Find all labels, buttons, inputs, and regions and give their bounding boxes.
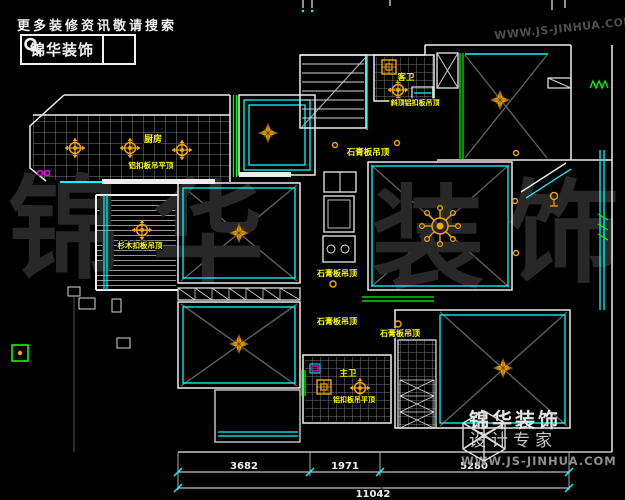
cube-logo-icon <box>461 410 507 462</box>
ornate-room <box>234 95 316 177</box>
hall-ceiling-label: 石膏板吊顶 <box>346 147 390 158</box>
ceiling-rosette-symbol <box>259 124 277 142</box>
watermark-text-layer: 锦 华 装 饰 <box>8 165 620 305</box>
watermark-char: 锦 <box>8 165 120 295</box>
watermark-char: 饰 <box>508 169 620 299</box>
bath-top-label: 客卫 <box>396 72 415 83</box>
room-bottomleft <box>178 288 300 442</box>
bath-bottom-label: 主卫 <box>339 368 357 379</box>
vegetation-symbol <box>590 81 608 88</box>
top-edge-ticks <box>302 0 565 12</box>
left-datum-symbols <box>12 287 130 452</box>
kitchen-label: 厨房 <box>144 133 162 145</box>
promo-tagline: 更多装修资讯敬请搜索 <box>17 15 177 34</box>
company-logo-block: 锦华装饰 设计专家 WWW.JS-JINHUA.COM <box>461 410 625 468</box>
dimension-value: 3682 <box>230 461 258 472</box>
bottomright-ceiling-label: 石膏板吊顶 <box>379 328 420 338</box>
dimension-value: 1971 <box>331 461 359 472</box>
corridor-ceiling-label: 石膏板吊顶 <box>316 268 357 278</box>
search-icon <box>104 36 134 63</box>
chandelier-symbol <box>420 206 461 247</box>
bottomright-strip-grid <box>398 340 436 428</box>
bath-bottom-ceiling-label: 铝扣板吊平顶 <box>333 395 375 404</box>
search-box: 锦华装饰 <box>20 34 136 65</box>
kitchen-ceiling-label: 铝扣板吊平顶 <box>129 160 174 170</box>
dimension-total: 11042 <box>356 489 391 500</box>
cad-screenshot: 锦 华 装 饰 <box>0 0 625 500</box>
stair-diagonal <box>302 58 365 127</box>
corridor-ceiling-label: 石膏板吊顶 <box>316 316 357 326</box>
balcony-ceiling-label: 杉木扣板吊顶 <box>118 240 163 250</box>
bath-top-ceiling-label: 斜顶铝扣板吊顶 <box>390 98 440 107</box>
